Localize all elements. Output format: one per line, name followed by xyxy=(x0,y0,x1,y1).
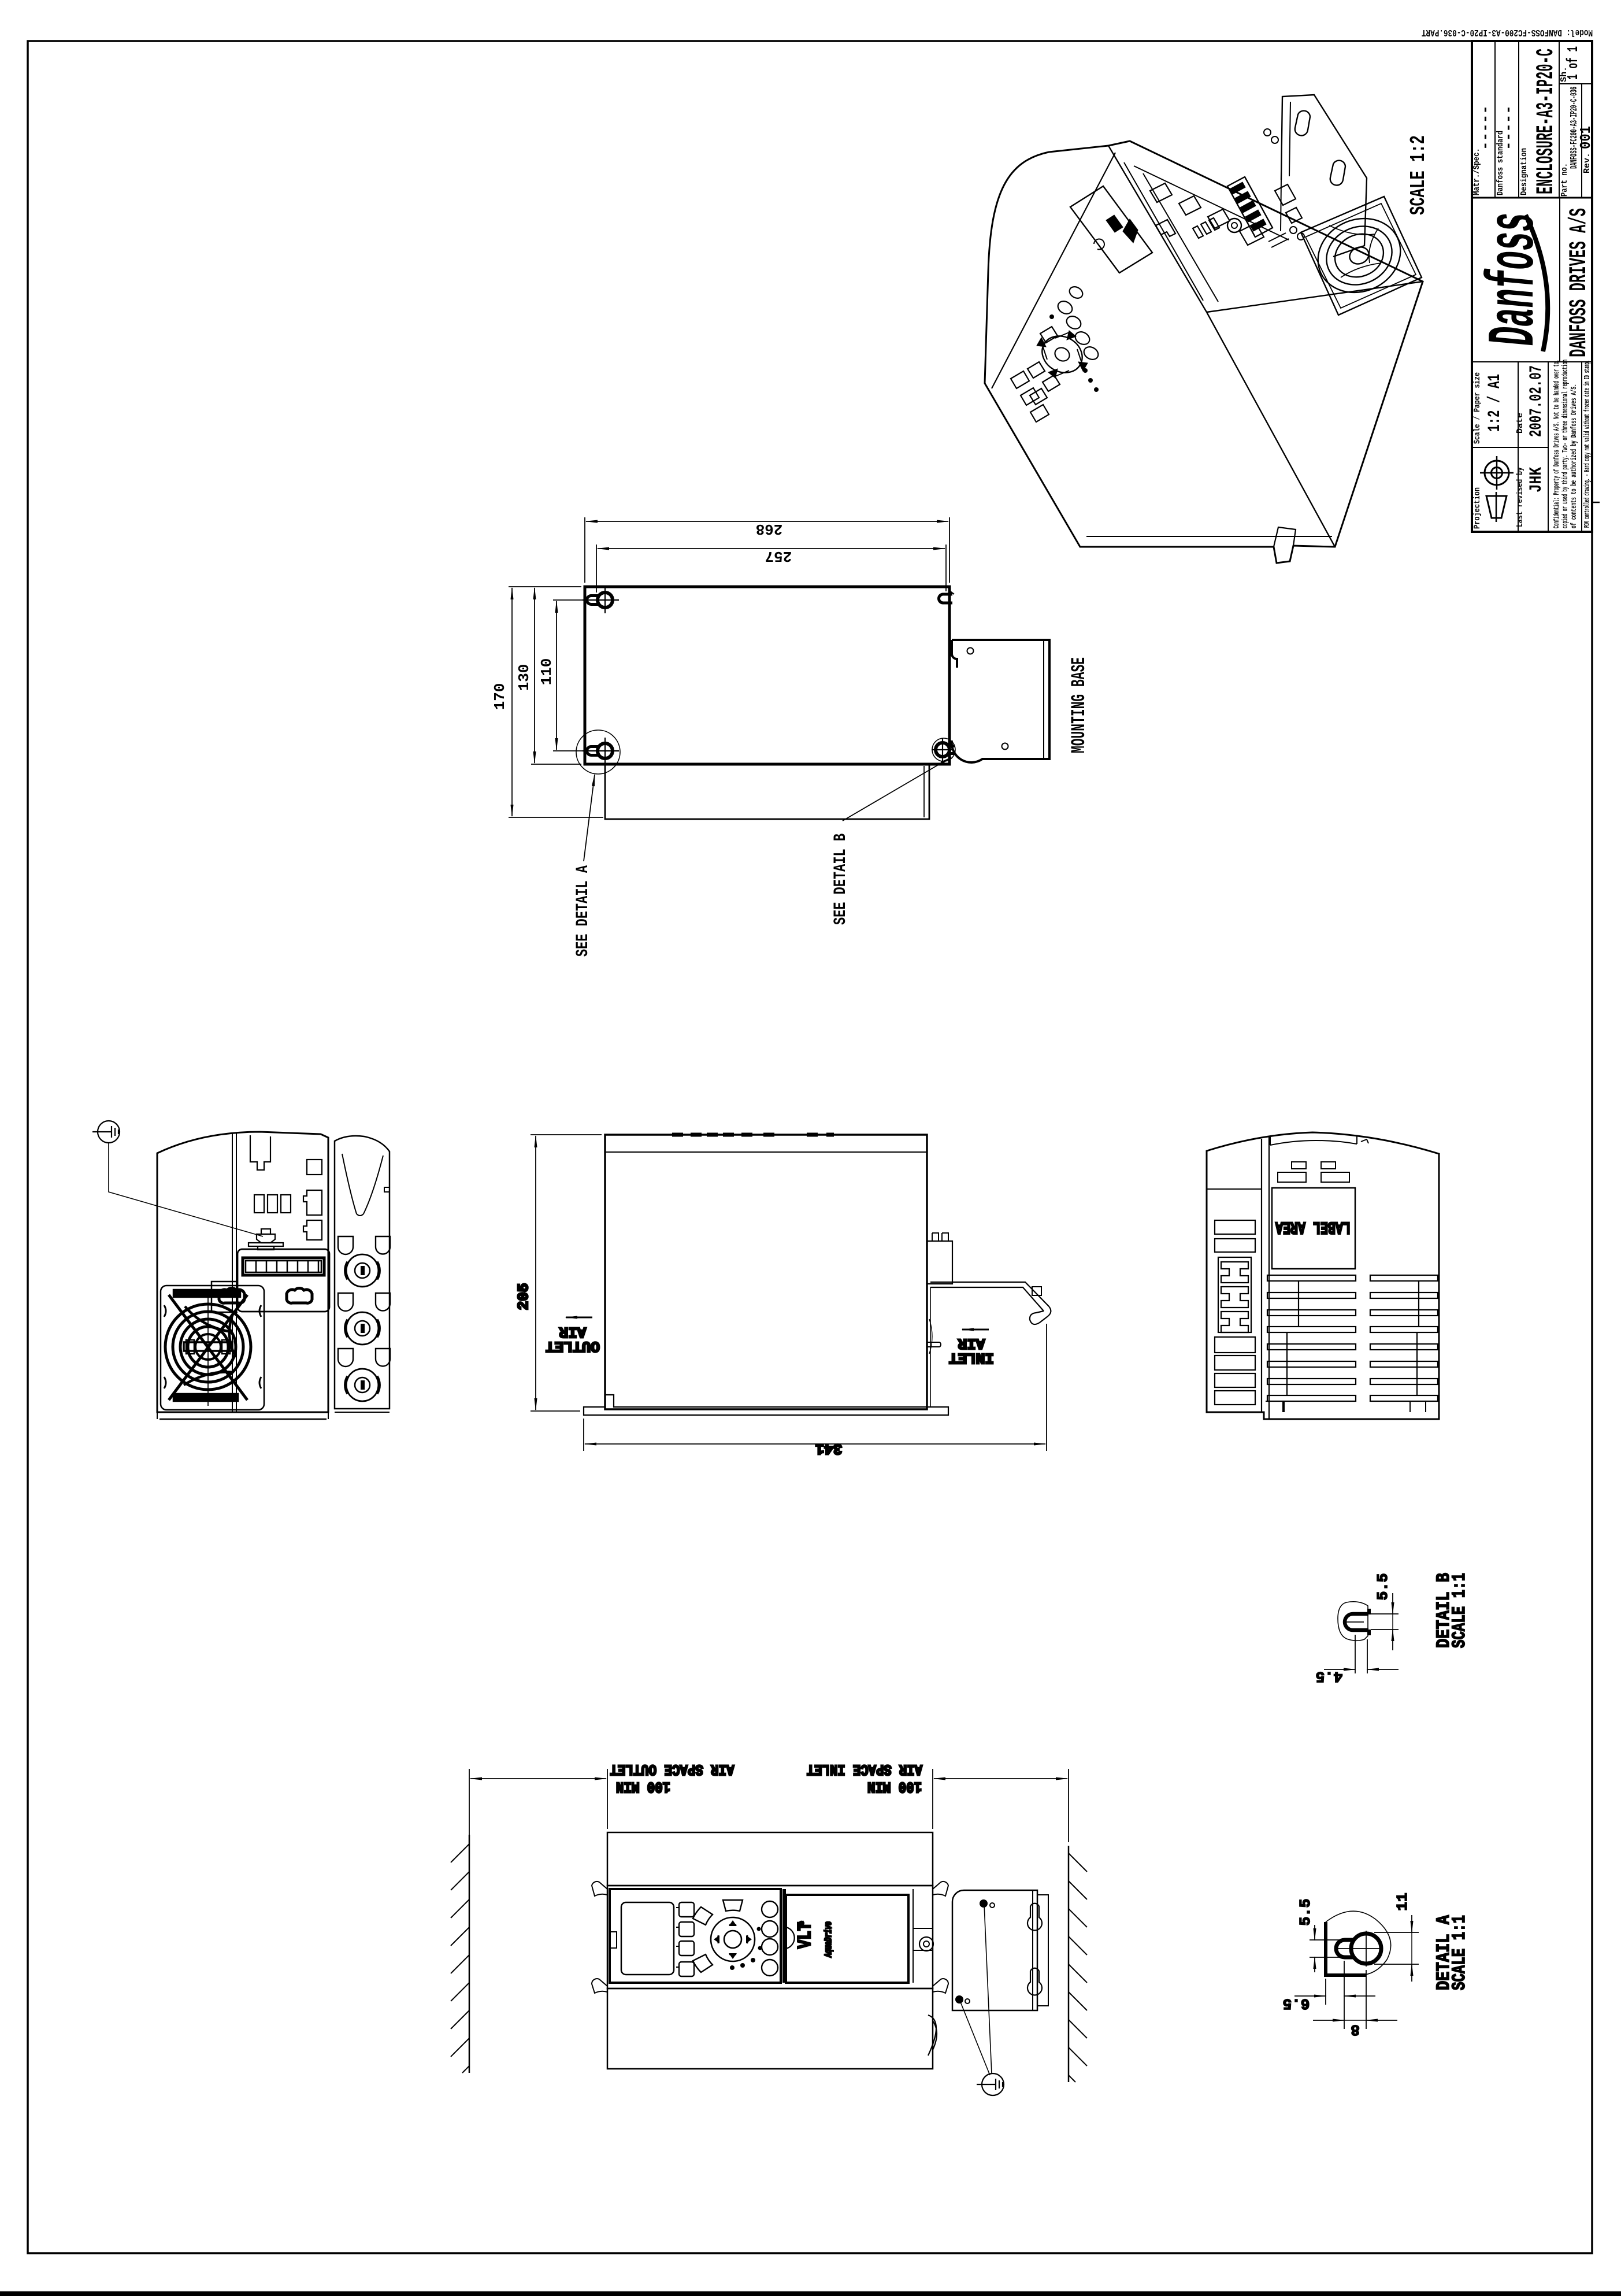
svg-text:Projection: Projection xyxy=(1472,487,1482,529)
svg-text:JHK: JHK xyxy=(1527,467,1546,492)
svg-text:-----: ----- xyxy=(1500,105,1517,150)
svg-text:®: ® xyxy=(799,1921,806,1925)
svg-text:AquaDrive: AquaDrive xyxy=(824,1921,834,1958)
svg-text:1 of 1: 1 of 1 xyxy=(1564,46,1582,80)
svg-text:11: 11 xyxy=(1394,1893,1411,1910)
svg-text:6.5: 6.5 xyxy=(1283,1995,1310,2012)
svg-text:1:2 / A1: 1:2 / A1 xyxy=(1485,374,1505,432)
svg-text:VLT: VLT xyxy=(795,1922,816,1949)
svg-text:INLET: INLET xyxy=(949,1349,994,1367)
svg-text:130: 130 xyxy=(515,664,533,691)
svg-text:100 MIN: 100 MIN xyxy=(616,1778,670,1795)
svg-text:341: 341 xyxy=(815,1440,843,1457)
svg-text:of contents to be authorized b: of contents to be authorized by Danfoss … xyxy=(1570,384,1579,528)
svg-text:copied or used by third party.: copied or used by third party. Two- or t… xyxy=(1561,360,1570,528)
svg-text:SCALE 1:2: SCALE 1:2 xyxy=(1407,135,1430,215)
svg-text:AIR SPACE OUTLET: AIR SPACE OUTLET xyxy=(610,1761,735,1778)
svg-text:Date: Date xyxy=(1515,413,1525,434)
svg-text:Part no.: Part no. xyxy=(1560,163,1570,197)
svg-text:Scale / Paper size: Scale / Paper size xyxy=(1472,372,1482,444)
svg-text:205: 205 xyxy=(515,1283,532,1310)
svg-text:SEE DETAIL B: SEE DETAIL B xyxy=(831,834,851,925)
svg-text:170: 170 xyxy=(491,683,509,710)
svg-text:AIR SPACE INLET: AIR SPACE INLET xyxy=(807,1761,922,1778)
svg-text:268: 268 xyxy=(756,520,783,538)
svg-text:Last revised by: Last revised by xyxy=(1515,467,1525,527)
svg-text:LABEL AREA: LABEL AREA xyxy=(1275,1217,1351,1236)
svg-text:Matr./Spec.: Matr./Spec. xyxy=(1472,148,1482,195)
svg-text:5.5: 5.5 xyxy=(1374,1573,1392,1601)
svg-text:-----: ----- xyxy=(1477,105,1494,150)
svg-text:SCALE 1:1: SCALE 1:1 xyxy=(1449,1915,1470,1990)
svg-text:MOUNTING BASE: MOUNTING BASE xyxy=(1069,657,1090,753)
svg-text:Danfoss: Danfoss xyxy=(1477,213,1553,346)
svg-text:OUTLET: OUTLET xyxy=(546,1338,600,1355)
svg-text:100 MIN: 100 MIN xyxy=(867,1778,922,1795)
svg-text:2007.02.07: 2007.02.07 xyxy=(1527,365,1546,437)
svg-text:5.5: 5.5 xyxy=(1297,1899,1314,1926)
svg-text:Confidential: Property of Danf: Confidential: Property of Danfoss Drives… xyxy=(1552,360,1561,528)
svg-text:ENCLOSURE-A3-IP20-C: ENCLOSURE-A3-IP20-C xyxy=(1532,49,1560,194)
svg-text:SCALE 1:1: SCALE 1:1 xyxy=(1449,1573,1470,1648)
svg-text:PDM controlled drawing. - Hard: PDM controlled drawing. - Hard copy not … xyxy=(1583,360,1592,528)
svg-text:DANFOSS DRIVES A/S: DANFOSS DRIVES A/S xyxy=(1565,208,1593,357)
svg-text:4.5: 4.5 xyxy=(1316,1668,1343,1685)
svg-text:257: 257 xyxy=(765,547,792,565)
svg-text:Rev.: Rev. xyxy=(1582,153,1592,173)
svg-text:Designation: Designation xyxy=(1519,148,1529,195)
svg-text:110: 110 xyxy=(538,658,555,686)
svg-text:SEE DETAIL A: SEE DETAIL A xyxy=(573,865,593,957)
svg-text:001: 001 xyxy=(1577,126,1594,149)
svg-text:Model: DANFOSS-FC200-A3-IP20-C: Model: DANFOSS-FC200-A3-IP20-C-036.PART xyxy=(1422,27,1593,38)
svg-text:8: 8 xyxy=(1351,2021,1360,2038)
